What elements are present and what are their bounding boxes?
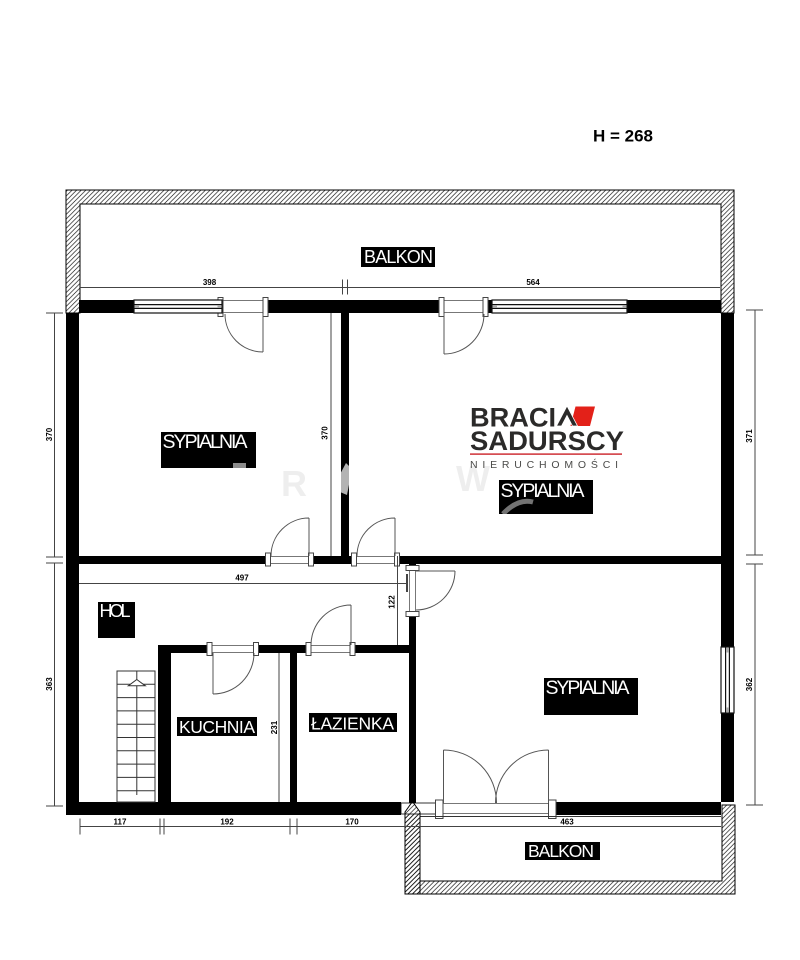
svg-text:W: W	[456, 458, 490, 499]
svg-text:398: 398	[203, 278, 217, 287]
svg-text:HOL: HOL	[100, 601, 131, 621]
svg-text:564: 564	[526, 278, 540, 287]
svg-text:BALKON: BALKON	[364, 247, 433, 267]
svg-text:SYPIALNIA: SYPIALNIA	[501, 480, 585, 502]
svg-text:371: 371	[745, 429, 754, 443]
svg-text:363: 363	[45, 677, 54, 691]
svg-text:192: 192	[220, 818, 234, 827]
svg-text:SYPIALNIA: SYPIALNIA	[546, 677, 630, 699]
svg-text:SYPIALNIA: SYPIALNIA	[163, 431, 248, 453]
svg-text:463: 463	[560, 818, 574, 827]
svg-text:KUCHNIA: KUCHNIA	[179, 717, 255, 737]
svg-text:NIERUCHOMOŚCI: NIERUCHOMOŚCI	[470, 458, 621, 471]
svg-text:497: 497	[235, 574, 249, 583]
svg-text:SADURSCY: SADURSCY	[470, 426, 624, 456]
svg-text:122: 122	[388, 595, 397, 609]
svg-text:H = 268: H = 268	[593, 127, 653, 146]
svg-text:370: 370	[45, 427, 54, 441]
svg-text:BALKON: BALKON	[528, 841, 594, 861]
svg-text:ŁAZIENKA: ŁAZIENKA	[311, 714, 394, 734]
svg-text:370: 370	[321, 426, 330, 440]
svg-text:231: 231	[270, 720, 279, 734]
svg-text:170: 170	[345, 818, 359, 827]
svg-text:362: 362	[745, 677, 754, 691]
svg-text:R: R	[281, 463, 307, 504]
svg-text:117: 117	[114, 818, 127, 827]
